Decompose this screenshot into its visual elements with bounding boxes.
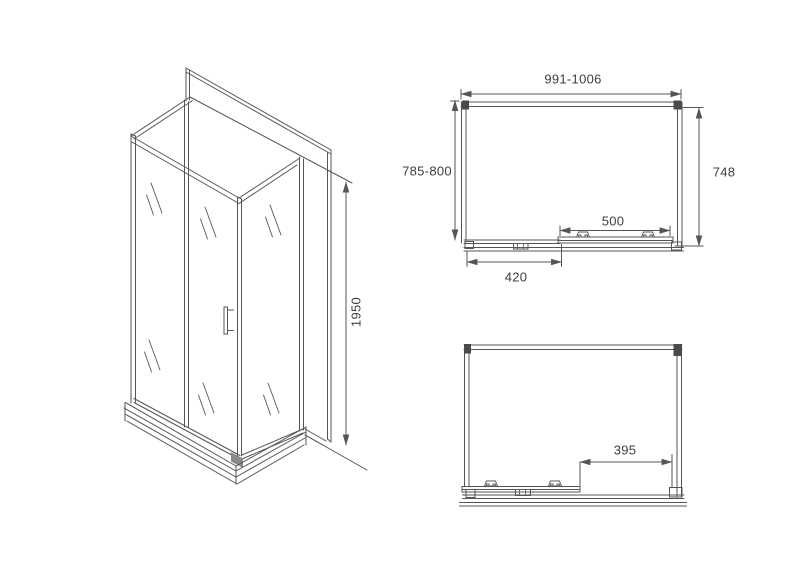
open-plan-bottom-rail (460, 481, 687, 506)
dim-width-label: 991-1006 (544, 72, 601, 87)
plan-open-view-drawing (460, 344, 687, 506)
dim-height-label: 1950 (349, 297, 364, 327)
plan-bottom-rail (464, 232, 684, 251)
frame-posts (131, 100, 304, 457)
door-handle (224, 307, 234, 334)
plan-walls (461, 101, 682, 248)
dim-fixed-panel-label: 420 (505, 270, 528, 285)
open-plan-walls (464, 344, 682, 497)
top-rim-frame (131, 97, 352, 204)
dim-door-width-label: 500 (602, 214, 625, 229)
perspective-view-drawing (124, 68, 367, 484)
plan-view-drawing (451, 90, 704, 267)
dim-side-depth-label: 748 (713, 165, 736, 180)
drawing-linework (0, 0, 800, 566)
back-panel (186, 68, 331, 445)
dim-opening-label: 395 (614, 443, 637, 458)
glass-shine-marks (145, 183, 282, 415)
dim-depth-label: 785-800 (402, 164, 452, 179)
technical-drawing-canvas: 991-1006 785-800 748 500 420 395 1950 (0, 0, 800, 566)
open-plan-dimension-lines (580, 455, 672, 488)
